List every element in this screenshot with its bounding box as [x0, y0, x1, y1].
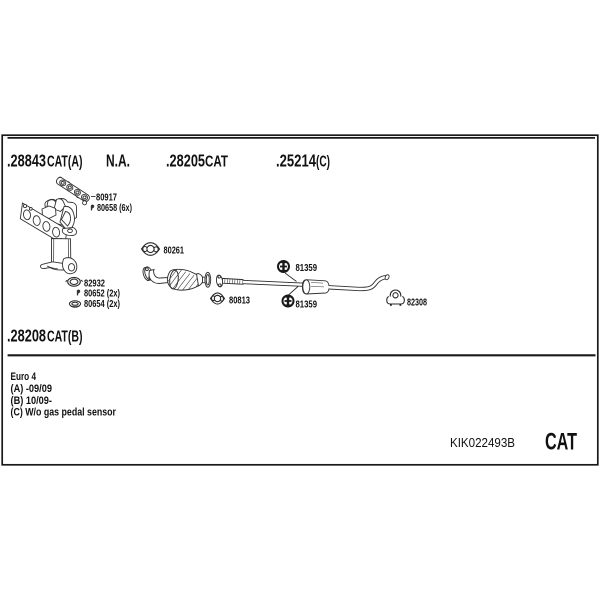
svg-text:.28208: .28208: [7, 326, 46, 346]
svg-text:.28843: .28843: [7, 151, 46, 171]
svg-text:81359: 81359: [296, 299, 318, 311]
svg-text:CAT: CAT: [545, 429, 577, 456]
svg-text:(A) -09/09: (A) -09/09: [11, 383, 53, 395]
svg-text:(C): (C): [316, 154, 330, 171]
svg-text:81359: 81359: [296, 262, 318, 274]
svg-text:(C) W/o gas pedal sensor: (C) W/o gas pedal sensor: [11, 407, 117, 419]
svg-text:CAT(B): CAT(B): [47, 329, 83, 346]
svg-text:.25214: .25214: [276, 151, 316, 171]
svg-text:80261: 80261: [164, 245, 185, 257]
svg-text:80654 (2x): 80654 (2x): [84, 298, 120, 310]
svg-text:N.A.: N.A.: [106, 151, 130, 171]
svg-text:Euro 4: Euro 4: [11, 371, 37, 383]
svg-text:CAT(A): CAT(A): [47, 154, 83, 171]
svg-text:82308: 82308: [407, 297, 427, 309]
svg-text:CAT: CAT: [205, 154, 228, 171]
svg-text:80658 (6x): 80658 (6x): [97, 202, 132, 214]
svg-text:(B) 10/09-: (B) 10/09-: [11, 395, 53, 407]
svg-text:80813: 80813: [229, 295, 250, 307]
svg-text:.28205: .28205: [166, 151, 205, 171]
svg-text:KIK022493B: KIK022493B: [450, 436, 515, 450]
